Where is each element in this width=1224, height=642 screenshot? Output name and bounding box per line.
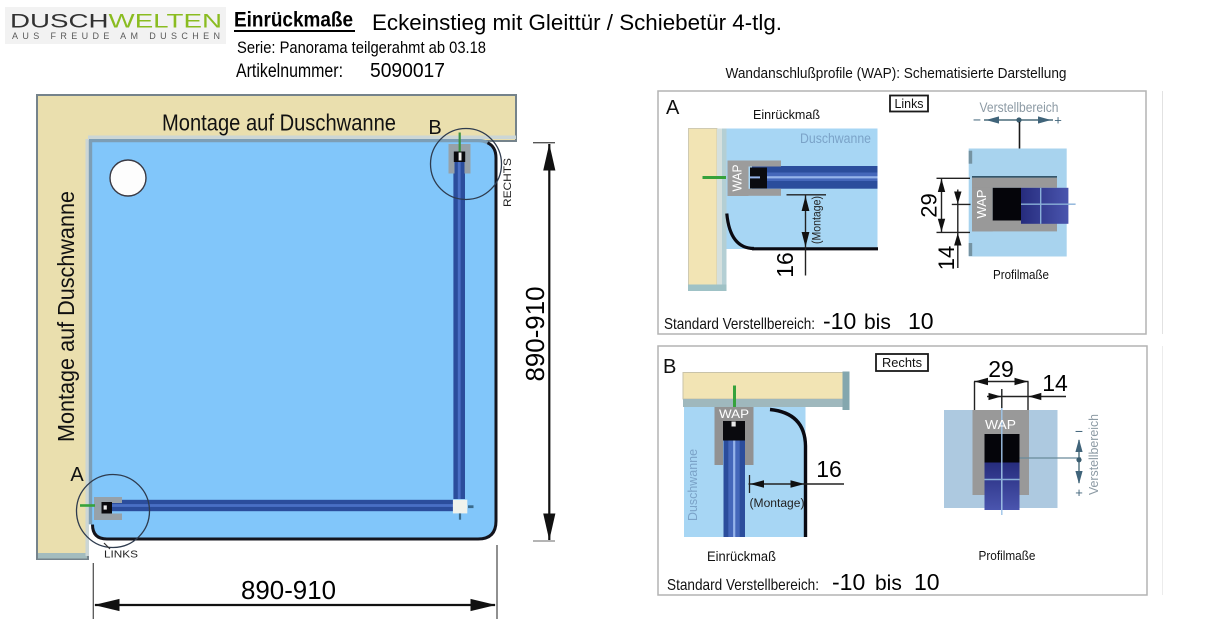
svg-text:WAP: WAP (731, 165, 745, 192)
svg-text:Einrückmaße: Einrückmaße (234, 9, 353, 32)
svg-text:A: A (70, 464, 84, 486)
svg-text:890-910: 890-910 (241, 575, 336, 605)
svg-text:14: 14 (934, 246, 959, 270)
svg-text:-10: -10 (832, 569, 865, 595)
svg-text:10: 10 (908, 308, 934, 334)
svg-text:−: − (973, 112, 981, 128)
svg-text:Links: Links (895, 97, 924, 111)
svg-text:Verstellbereich: Verstellbereich (1086, 414, 1101, 495)
svg-text:10: 10 (914, 569, 940, 595)
svg-text:Duschwanne: Duschwanne (800, 131, 871, 146)
svg-text:Serie: Panorama teilgerahmt ab: Serie: Panorama teilgerahmt ab 03.18 (237, 39, 486, 57)
svg-text:+: + (1054, 113, 1062, 128)
svg-text:Verstellbereich: Verstellbereich (980, 100, 1059, 115)
svg-text:Artikelnummer:: Artikelnummer: (236, 61, 343, 82)
svg-text:Wandanschlußprofile (WAP): Sch: Wandanschlußprofile (WAP): Schematisiert… (726, 65, 1067, 82)
svg-text:bis: bis (864, 311, 891, 334)
svg-text:DUSCHWELTEN: DUSCHWELTEN (10, 11, 222, 33)
svg-text:LINKS: LINKS (104, 549, 138, 561)
svg-text:RECHTS: RECHTS (502, 158, 514, 207)
svg-text:Profilmaße: Profilmaße (993, 267, 1049, 282)
svg-text:WAP: WAP (985, 418, 1016, 432)
svg-text:WAP: WAP (975, 190, 989, 219)
svg-text:B: B (663, 356, 676, 378)
svg-text:29: 29 (917, 193, 942, 217)
svg-text:B: B (428, 117, 441, 139)
svg-text:Montage auf Duschwanne: Montage auf Duschwanne (162, 110, 396, 136)
svg-text:bis: bis (875, 572, 902, 595)
svg-text:14: 14 (1042, 370, 1068, 396)
svg-text:(Montage): (Montage) (750, 498, 805, 510)
svg-text:A: A (666, 97, 680, 119)
svg-text:+: + (1075, 485, 1083, 500)
svg-text:Eckeinstieg mit Gleittür / Sch: Eckeinstieg mit Gleittür / Schiebetür 4-… (372, 10, 782, 35)
svg-text:(Montage): (Montage) (812, 196, 824, 244)
svg-text:Einrückmaß: Einrückmaß (753, 107, 820, 122)
svg-text:890-910: 890-910 (520, 287, 550, 382)
svg-text:Standard Verstellbereich:: Standard Verstellbereich: (667, 577, 819, 594)
svg-text:16: 16 (816, 456, 842, 482)
svg-text:29: 29 (988, 356, 1014, 382)
svg-text:WAP: WAP (719, 407, 749, 421)
svg-text:Duschwanne: Duschwanne (685, 449, 700, 521)
svg-text:Profilmaße: Profilmaße (979, 548, 1036, 563)
svg-text:Rechts: Rechts (882, 356, 922, 370)
svg-text:-10: -10 (823, 308, 856, 334)
svg-text:Montage auf Duschwanne: Montage auf Duschwanne (53, 191, 79, 442)
svg-text:16: 16 (772, 252, 798, 278)
svg-text:Einrückmaß: Einrückmaß (707, 549, 776, 564)
svg-text:Standard Verstellbereich:: Standard Verstellbereich: (664, 316, 815, 333)
svg-text:5090017: 5090017 (370, 60, 445, 82)
svg-text:−: − (1075, 423, 1083, 439)
